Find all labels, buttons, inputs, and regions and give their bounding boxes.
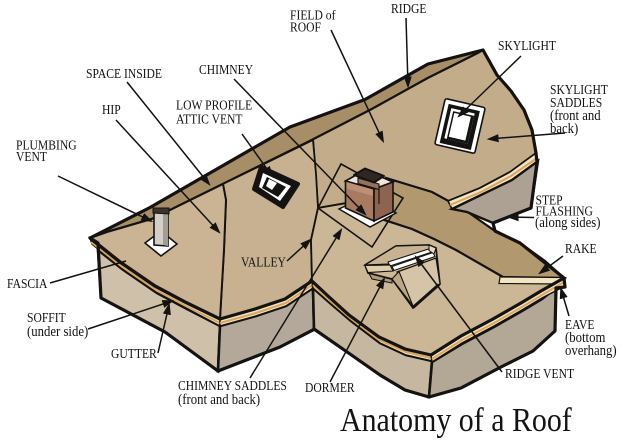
svg-text:RIDGE: RIDGE bbox=[391, 1, 426, 16]
svg-text:VALLEY: VALLEY bbox=[241, 255, 286, 270]
svg-text:HIP: HIP bbox=[102, 102, 121, 117]
svg-text:CHIMNEY: CHIMNEY bbox=[199, 62, 253, 77]
svg-text:RIDGE VENT: RIDGE VENT bbox=[505, 366, 574, 381]
svg-text:overhang): overhang) bbox=[565, 342, 617, 359]
svg-text:back): back) bbox=[550, 120, 578, 137]
svg-text:LOW PROFILE: LOW PROFILE bbox=[176, 98, 252, 113]
svg-text:(under side): (under side) bbox=[27, 323, 88, 340]
svg-text:SPACE INSIDE: SPACE INSIDE bbox=[86, 66, 162, 81]
svg-text:FASCIA: FASCIA bbox=[7, 276, 47, 291]
svg-text:(front and back): (front and back) bbox=[178, 391, 260, 408]
svg-text:VENT: VENT bbox=[16, 149, 47, 164]
svg-text:DORMER: DORMER bbox=[305, 380, 355, 395]
svg-text:ROOF: ROOF bbox=[290, 20, 321, 35]
svg-text:(along sides): (along sides) bbox=[535, 214, 600, 231]
svg-text:ATTIC VENT: ATTIC VENT bbox=[176, 112, 243, 127]
svg-text:SKYLIGHT: SKYLIGHT bbox=[498, 38, 556, 53]
svg-text:RAKE: RAKE bbox=[565, 241, 597, 256]
svg-text:Anatomy of a Roof: Anatomy of a Roof bbox=[340, 400, 572, 438]
svg-text:GUTTER: GUTTER bbox=[111, 346, 157, 361]
